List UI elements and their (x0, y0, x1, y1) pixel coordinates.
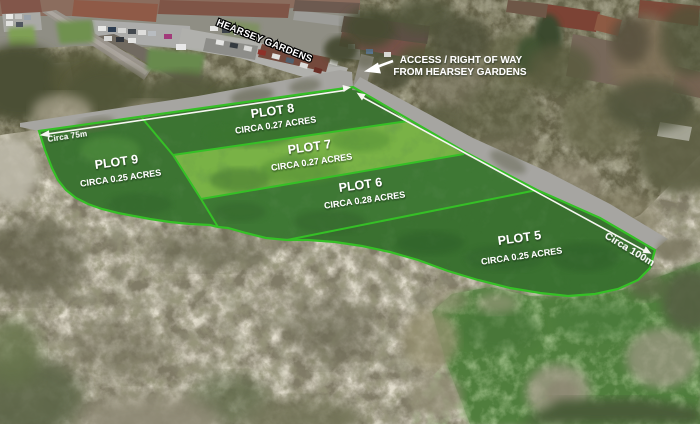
svg-text:ACCESS / RIGHT OF WAY: ACCESS / RIGHT OF WAY (400, 55, 523, 66)
svg-text:FROM HEARSEY GARDENS: FROM HEARSEY GARDENS (393, 67, 526, 78)
